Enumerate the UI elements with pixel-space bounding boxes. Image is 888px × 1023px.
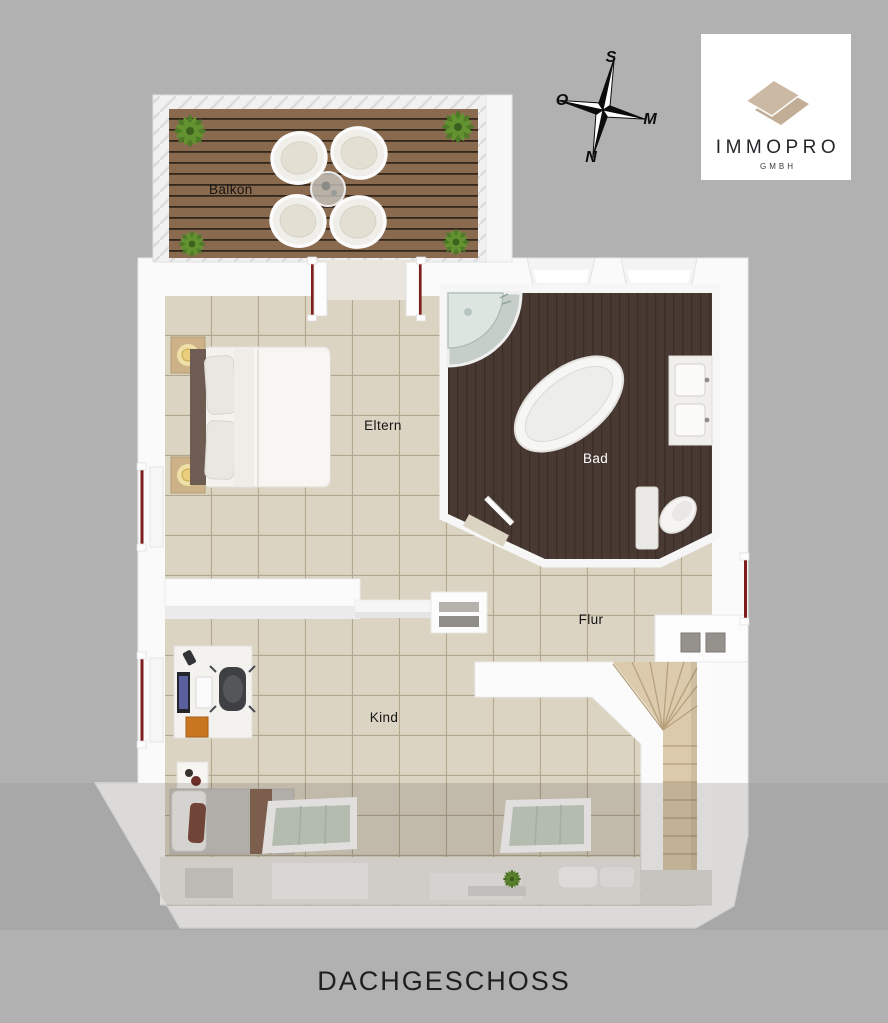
room-label-flur: Flur [579, 612, 604, 627]
plant-bottom-right [443, 229, 470, 256]
cup [331, 190, 337, 196]
hall-sideboard [431, 592, 487, 633]
door-jamb-accent [419, 262, 422, 318]
vanity [669, 356, 712, 445]
plan-title: DACHGESCHOSS [317, 966, 571, 996]
plant-bottom-left [179, 231, 206, 258]
window-right-flur [744, 558, 747, 620]
double-bed [190, 347, 330, 487]
keyboard [196, 677, 212, 708]
faucet [705, 378, 710, 383]
room-bad: Bad [448, 293, 712, 559]
pillow [204, 355, 237, 415]
window-left-kind [141, 657, 144, 743]
teapot [322, 182, 331, 191]
logo-suffix-text: GMBH [760, 162, 796, 171]
headboard [190, 349, 206, 485]
compass-label-m: M [643, 111, 657, 128]
window-left-eltern [141, 468, 144, 546]
compass-label-s: S [606, 49, 617, 66]
plant-top-left [174, 115, 206, 147]
floorplan-page: Balkon [0, 0, 888, 1023]
door-jamb-accent [311, 262, 314, 318]
roof-slope-shade-building [95, 783, 748, 928]
compass-rose: S O M N [547, 46, 658, 167]
compass-label-o: O [556, 92, 569, 109]
chimney-block [655, 615, 748, 662]
room-label-bad: Bad [583, 451, 608, 466]
room-label-balkon: Balkon [209, 182, 253, 197]
brand-logo: IMMOPRO GMBH [701, 34, 851, 180]
room-label-kind: Kind [370, 710, 399, 725]
room-label-eltern: Eltern [364, 418, 402, 433]
faucet [705, 418, 710, 423]
plant-top-right [442, 111, 474, 143]
compass-label-n: N [585, 149, 597, 166]
balcony-side-wall [486, 95, 512, 262]
balcony: Balkon [153, 95, 490, 262]
pillow [205, 420, 237, 479]
logo-brand-text: IMMOPRO [716, 137, 840, 158]
waste-bin [186, 717, 208, 737]
floorplan-canvas: Balkon [0, 0, 888, 1023]
